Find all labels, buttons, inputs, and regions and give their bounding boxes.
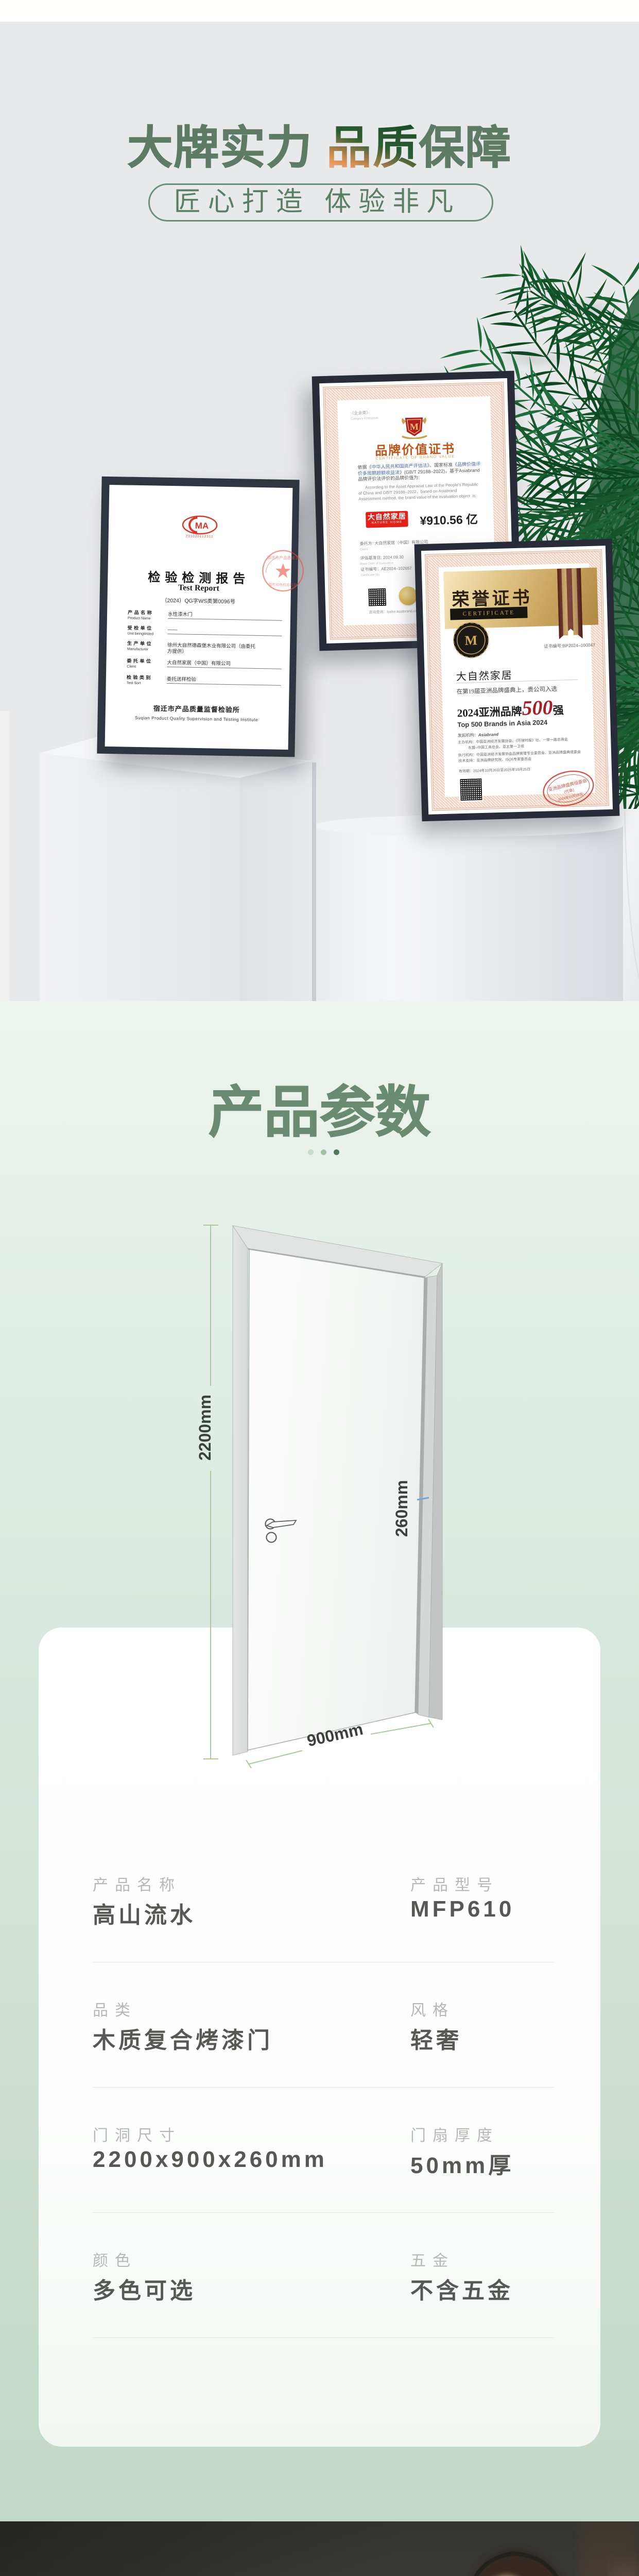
svg-text:宿迁市产品质量监: 宿迁市产品质量监 (267, 555, 300, 561)
svg-text:MA: MA (195, 521, 209, 531)
svg-text:M: M (410, 421, 419, 432)
svg-text:M: M (464, 633, 477, 648)
svg-text:2200mm: 2200mm (196, 1395, 214, 1461)
svg-text:260mm: 260mm (392, 1480, 411, 1537)
svg-text:211020112311: 211020112311 (186, 535, 214, 539)
